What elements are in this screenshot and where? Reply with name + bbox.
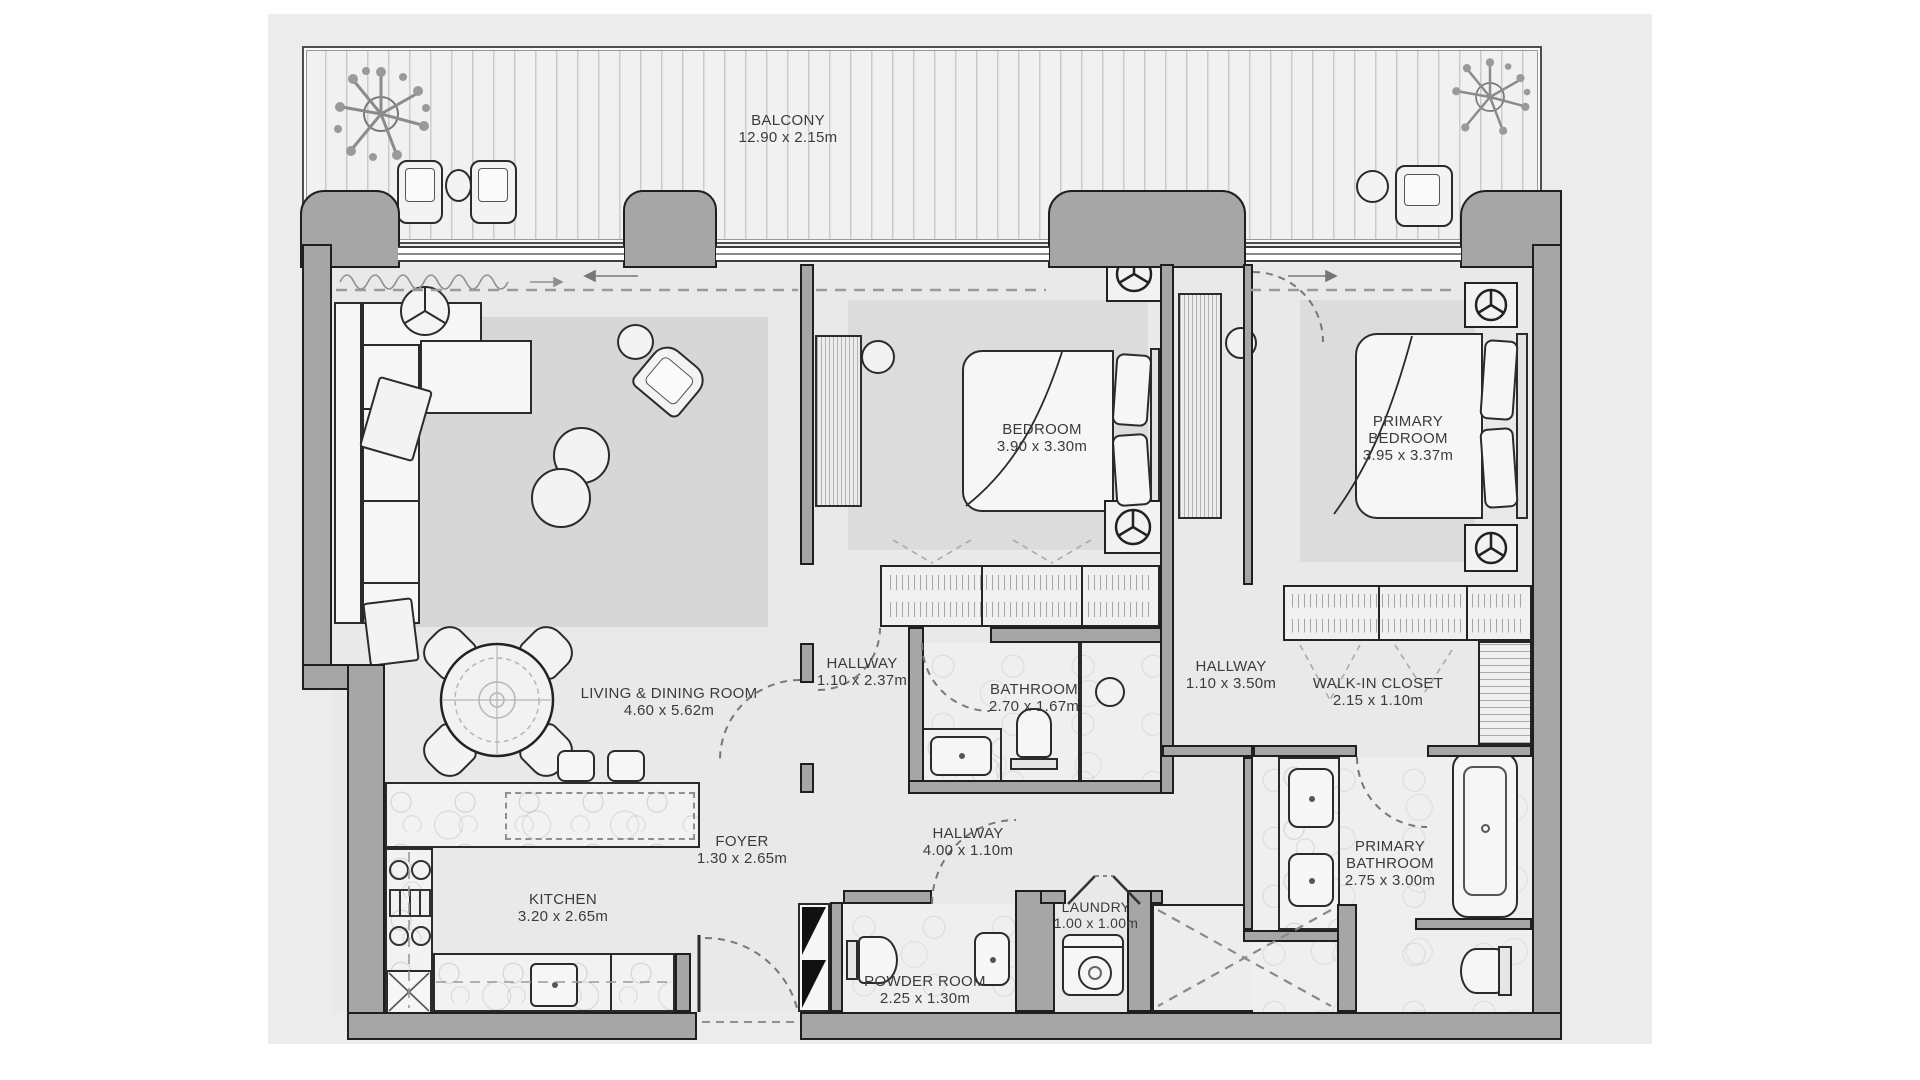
bed-pillow: [1479, 427, 1518, 509]
wall-hallway-left: [800, 763, 814, 793]
room-name: HALLWAY: [923, 825, 1013, 842]
toilet: [1460, 948, 1502, 994]
bar-stool: [557, 750, 595, 782]
room-label-hallway-primary: HALLWAY 1.10 x 3.50m: [1186, 658, 1276, 692]
room-dims: 4.00 x 1.10m: [923, 842, 1013, 859]
tree-icon: [1448, 55, 1532, 139]
lamp-icon: [1466, 284, 1516, 326]
exterior-wall-left: [302, 244, 332, 670]
room-label-powder-room: POWDER ROOM 2.25 x 1.30m: [864, 973, 986, 1007]
room-label-primary-bedroom: PRIMARY BEDROOM 3.95 x 3.37m: [1349, 413, 1467, 464]
toilet-tank: [1498, 946, 1512, 996]
room-dims: 2.15 x 1.10m: [1313, 692, 1443, 709]
accent-table: [860, 339, 896, 375]
balcony-armchair: [470, 160, 517, 224]
room-label-bedroom: BEDROOM 3.90 x 3.30m: [997, 421, 1087, 455]
exterior-wall-right: [1532, 244, 1562, 1040]
room-label-balcony: BALCONY 12.90 x 2.15m: [739, 112, 838, 146]
wall-hallway2-end: [1162, 745, 1253, 757]
pouf: [531, 468, 591, 528]
room-dims: 4.60 x 5.62m: [581, 702, 758, 719]
nightstand: [1104, 500, 1162, 554]
bed-pillow: [1112, 353, 1153, 427]
walk-in-shelving: [1478, 641, 1532, 745]
room-dims: 2.70 x 1.67m: [989, 698, 1079, 715]
room-dims: 12.90 x 2.15m: [739, 129, 838, 146]
bed-headboard: [1150, 348, 1160, 514]
room-dims: 1.10 x 3.50m: [1186, 675, 1276, 692]
wall-powder-top: [843, 890, 932, 904]
room-dims: 2.25 x 1.30m: [864, 990, 986, 1007]
lamp-icon: [1466, 526, 1516, 570]
wall-hallway-bathroom: [908, 627, 924, 793]
column: [623, 190, 717, 268]
wall-bedroom-hallway2: [1160, 264, 1174, 794]
room-name: PRIMARY BATHROOM: [1331, 838, 1449, 872]
room-name: BATHROOM: [989, 681, 1079, 698]
room-name: BEDROOM: [997, 421, 1087, 438]
room-dims: 1.30 x 2.65m: [697, 850, 787, 867]
counter-divider: [610, 955, 612, 1010]
wall-primary-bath-top: [1253, 745, 1357, 757]
window-bedroom: [716, 246, 1049, 262]
wall-bathroom-top: [990, 627, 1162, 643]
primary-sink: [1288, 853, 1334, 907]
closet-door-leaves: [800, 905, 828, 1010]
room-dims: 1.00 x 1.00m: [1054, 915, 1139, 931]
wall-powder-left: [830, 902, 843, 1012]
exterior-wall-bottom: [347, 1012, 697, 1040]
bathroom-sink: [930, 736, 992, 776]
room-name: KITCHEN: [518, 891, 608, 908]
side-table: [617, 324, 654, 360]
wall-shaft: [1337, 904, 1357, 1012]
wall-toilet-nook: [1415, 918, 1532, 930]
sofa-seats: [362, 302, 420, 624]
room-dims: 2.75 x 3.00m: [1331, 872, 1449, 889]
sofa-ottoman: [420, 340, 532, 414]
lamp-icon: [1106, 502, 1160, 552]
exterior-wall-bottom: [800, 1012, 1562, 1040]
bed-headboard: [1516, 333, 1528, 519]
room-label-kitchen: KITCHEN 3.20 x 2.65m: [518, 891, 608, 925]
room-dims: 3.20 x 2.65m: [518, 908, 608, 925]
balcony-armchair: [1395, 165, 1453, 227]
bed-pillow: [1112, 433, 1153, 507]
floor-lamp-icon: [398, 284, 452, 338]
room-dims: 1.10 x 2.37m: [817, 672, 907, 689]
room-name: HALLWAY: [1186, 658, 1276, 675]
nightstand: [1464, 524, 1518, 572]
room-label-living-dining: LIVING & DINING ROOM 4.60 x 5.62m: [581, 685, 758, 719]
room-name: BALCONY: [739, 112, 838, 129]
shower-drain-icon: [1094, 676, 1126, 708]
toilet-tank: [1010, 758, 1058, 770]
wall-hallway2-primary: [1243, 264, 1253, 585]
shaft-box: [386, 970, 432, 1014]
room-label-primary-bathroom: PRIMARY BATHROOM 2.75 x 3.00m: [1331, 838, 1449, 889]
floorplan-page: BALCONY 12.90 x 2.15m LIVING & DINING RO…: [0, 0, 1920, 1080]
wall-hallway-left: [800, 643, 814, 683]
window-living: [398, 246, 624, 262]
kitchen-sink: [530, 963, 578, 1007]
stove-icon: [386, 858, 434, 958]
room-label-walk-in-closet: WALK-IN CLOSET 2.15 x 1.10m: [1313, 675, 1443, 709]
balcony-armchair: [397, 160, 443, 224]
bedroom-closet-row: [880, 565, 1160, 627]
room-name: FOYER: [697, 833, 787, 850]
room-dims: 3.90 x 3.30m: [997, 438, 1087, 455]
room-name: POWDER ROOM: [864, 973, 986, 990]
room-label-bathroom: BATHROOM 2.70 x 1.67m: [989, 681, 1079, 715]
room-dims: 3.95 x 3.37m: [1349, 447, 1467, 464]
dining-table: [437, 640, 557, 760]
kitchen-island-outline: [505, 792, 695, 840]
throw-blanket: [362, 597, 419, 667]
room-name: HALLWAY: [817, 655, 907, 672]
washing-machine: [1062, 934, 1124, 996]
wall-post: [675, 953, 691, 1012]
column: [1048, 190, 1246, 268]
balcony-side-table: [1356, 170, 1389, 203]
wall-powder-laundry: [1015, 890, 1055, 1012]
wall-living-bedroom: [800, 264, 814, 565]
hallway-cabinet: [1178, 293, 1222, 519]
wall-primary-bath-top: [1427, 745, 1532, 757]
room-label-hallway-bedroom: HALLWAY 1.10 x 2.37m: [817, 655, 907, 689]
sofa-back: [334, 302, 362, 624]
room-name: LAUNDRY: [1054, 899, 1139, 915]
primary-closet-row: [1283, 585, 1532, 641]
room-label-hallway-main: HALLWAY 4.00 x 1.10m: [923, 825, 1013, 859]
nightstand: [1464, 282, 1518, 328]
toilet: [1016, 708, 1052, 758]
wall-bathroom-bottom: [908, 780, 1162, 794]
bar-stool: [607, 750, 645, 782]
room-label-foyer: FOYER 1.30 x 2.65m: [697, 833, 787, 867]
room-name: PRIMARY BEDROOM: [1349, 413, 1467, 447]
bedroom-wardrobe: [815, 335, 862, 507]
bathtub: [1452, 752, 1518, 918]
room-name: LIVING & DINING ROOM: [581, 685, 758, 702]
bed-pillow: [1479, 339, 1518, 421]
wall-primary-bath-left: [1243, 757, 1253, 930]
tree-icon: [330, 63, 432, 165]
primary-sink: [1288, 768, 1334, 828]
balcony-side-table: [445, 169, 472, 202]
exterior-wall-left-lower: [347, 664, 385, 1040]
room-label-laundry: LAUNDRY 1.00 x 1.00m: [1054, 899, 1139, 931]
toilet-tank: [846, 940, 858, 980]
window-primary-bedroom: [1246, 246, 1461, 262]
room-name: WALK-IN CLOSET: [1313, 675, 1443, 692]
